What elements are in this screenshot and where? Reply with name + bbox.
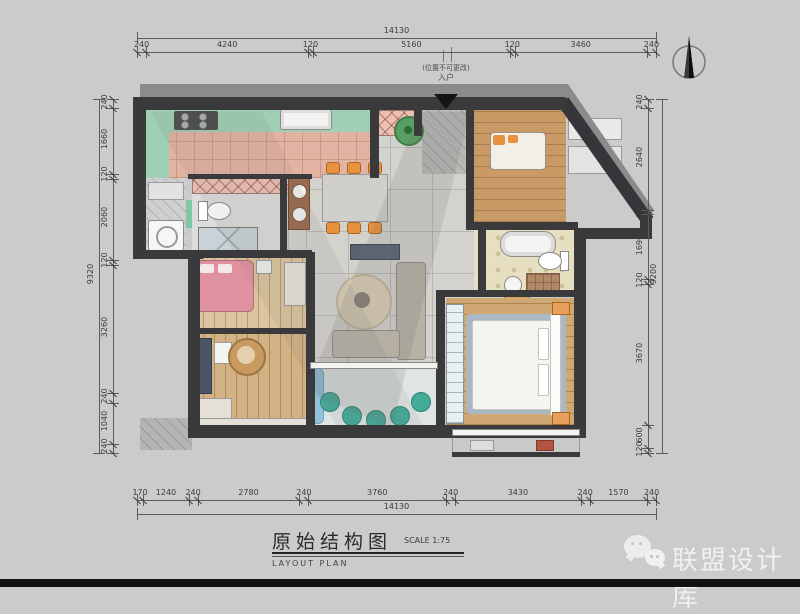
bubble-eye [631,542,634,545]
dim-label: 4240 [207,40,247,50]
dim-label: 5160 [391,40,431,50]
dim-total-label: 14130 [367,502,427,512]
dim-label: 120 [635,423,645,475]
title-rule-thick [272,552,464,554]
bubble-tail [657,561,665,569]
bubble-eye [639,542,642,545]
dim-label: 120 [100,234,110,286]
dim-label: 3260 [100,301,110,353]
page-title: 原始结构图 [272,527,392,554]
dim-label: 3460 [561,40,601,50]
dim-label: 3760 [357,488,397,498]
dim-tick [656,453,668,454]
dim-label: 240 [100,420,110,472]
dim-line [137,52,656,53]
dim-label: 240 [122,40,162,50]
title-rule-thin [272,556,464,557]
dim-line [662,99,663,453]
dim-label: 2780 [229,488,269,498]
dim-label: 240 [635,76,645,128]
wechat-icon [624,533,668,575]
floorplan-canvas: (位置不可更改) 入户 2404240120516012034602401413… [0,0,800,587]
dim-line [113,99,114,453]
bottom-bar [0,579,800,587]
dim-label: 240 [173,488,213,498]
dimension-layer: 2404240120516012034602401413017012402402… [0,0,800,587]
watermark-text: 联盟设计库 [672,540,800,614]
dim-label: 3670 [635,327,645,379]
dim-label: 120 [635,254,645,306]
dim-label: 240 [284,488,324,498]
dim-label: 120 [291,40,331,50]
dim-label: 240 [632,488,672,498]
dim-label: 240 [431,488,471,498]
dim-tick [656,99,668,100]
bubble-eye [650,555,653,558]
dim-total-label: 9320 [86,248,96,300]
bubble-eye [656,555,659,558]
page-subtitle: LAYOUT PLAN [272,559,392,569]
dim-total-label: 9200 [649,248,659,300]
dim-line [137,500,656,501]
dim-label: 2640 [635,131,645,183]
dim-tick [137,508,138,520]
dim-line [137,514,656,515]
scale-label: SCALE 1:75 [404,536,474,546]
dim-label: 3430 [498,488,538,498]
dim-line [137,38,656,39]
dim-tick [656,508,657,520]
dim-total-label: 14130 [367,26,427,36]
bubble-tail [626,552,636,562]
wechat-bubble-small [645,549,665,566]
dim-label: 120 [492,40,532,50]
dim-label: 240 [631,40,671,50]
floorplan-page: { "palette": { "background": "#cbcbcb", … [0,0,800,587]
